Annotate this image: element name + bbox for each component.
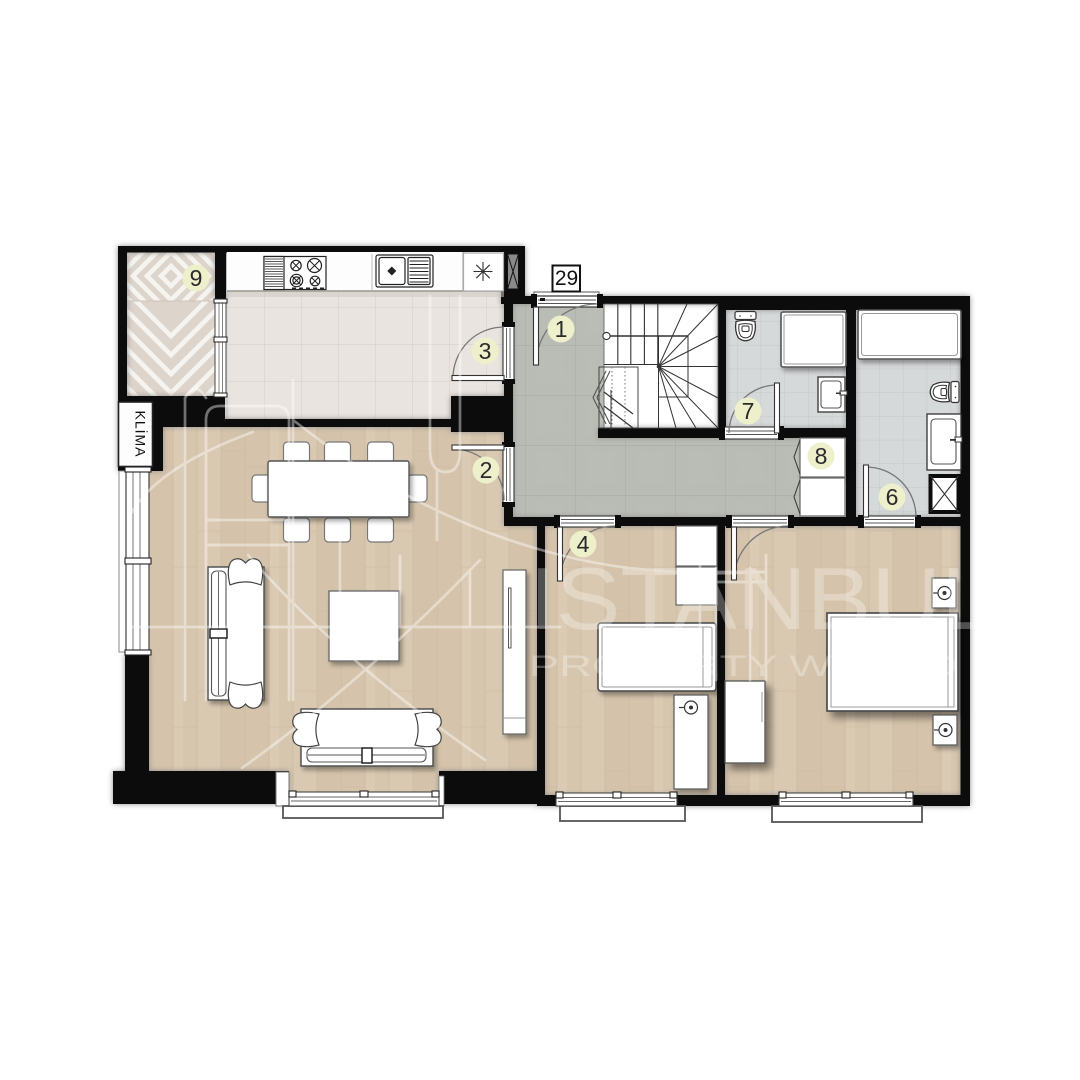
svg-text:PROPERTY WORLD: PROPERTY WORLD xyxy=(529,650,958,683)
svg-text:7: 7 xyxy=(742,398,755,424)
svg-text:2: 2 xyxy=(480,457,493,483)
svg-text:6: 6 xyxy=(886,484,899,510)
svg-text:9: 9 xyxy=(190,265,203,291)
svg-text:8: 8 xyxy=(815,443,828,469)
svg-text:KLİMA: KLİMA xyxy=(133,410,150,457)
svg-text:3: 3 xyxy=(479,338,492,364)
svg-text:1: 1 xyxy=(555,316,568,342)
svg-text:29: 29 xyxy=(555,267,578,290)
svg-text:ISTANBUL: ISTANBUL xyxy=(529,549,995,648)
